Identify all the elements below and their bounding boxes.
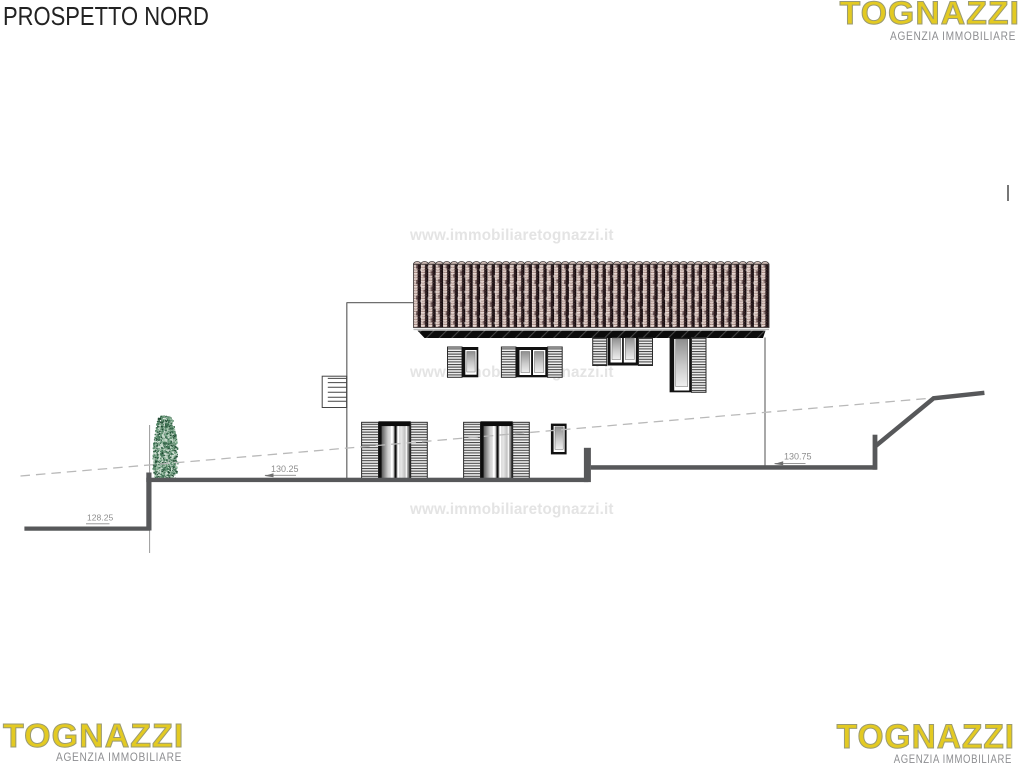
svg-text:130.25: 130.25 (271, 464, 299, 474)
svg-text:128.25: 128.25 (87, 513, 114, 523)
svg-text:130.75: 130.75 (784, 452, 812, 462)
